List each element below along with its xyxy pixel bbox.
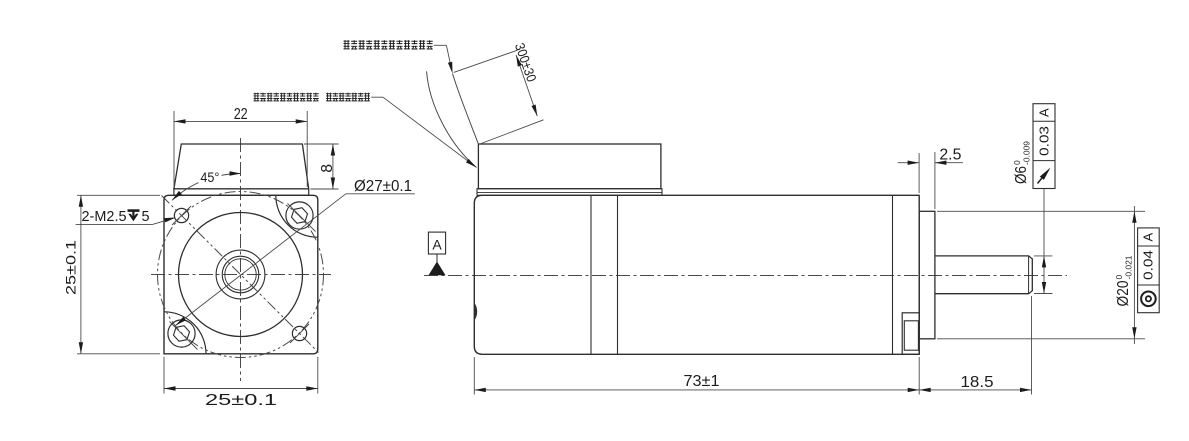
svg-text:A: A (1141, 233, 1156, 242)
svg-text:73±1: 73±1 (684, 373, 720, 390)
svg-text:0.03: 0.03 (1037, 126, 1052, 156)
svg-text:25±0.1: 25±0.1 (205, 392, 277, 409)
svg-text:0.04: 0.04 (1141, 250, 1156, 280)
svg-text:A: A (1037, 108, 1052, 117)
svg-text:-0.009: -0.009 (1022, 141, 1032, 165)
svg-text:25±0.1: 25±0.1 (63, 240, 79, 295)
svg-text:2.5: 2.5 (939, 147, 961, 164)
svg-text:0: 0 (1012, 160, 1022, 165)
svg-text:Ø20: Ø20 (1115, 280, 1132, 306)
svg-text:45°: 45° (200, 169, 219, 185)
svg-text:0: 0 (1114, 275, 1124, 280)
svg-text:18.5: 18.5 (961, 374, 994, 391)
svg-text:22: 22 (234, 106, 248, 123)
svg-text:-0.021: -0.021 (1124, 255, 1134, 279)
svg-text:5: 5 (142, 208, 150, 225)
svg-text:2-M2.5: 2-M2.5 (82, 208, 127, 225)
svg-text:8: 8 (319, 164, 336, 173)
svg-text:Ø6: Ø6 (1013, 166, 1030, 184)
svg-text:A: A (432, 237, 442, 253)
svg-text:Ø27±0.1: Ø27±0.1 (354, 178, 412, 195)
